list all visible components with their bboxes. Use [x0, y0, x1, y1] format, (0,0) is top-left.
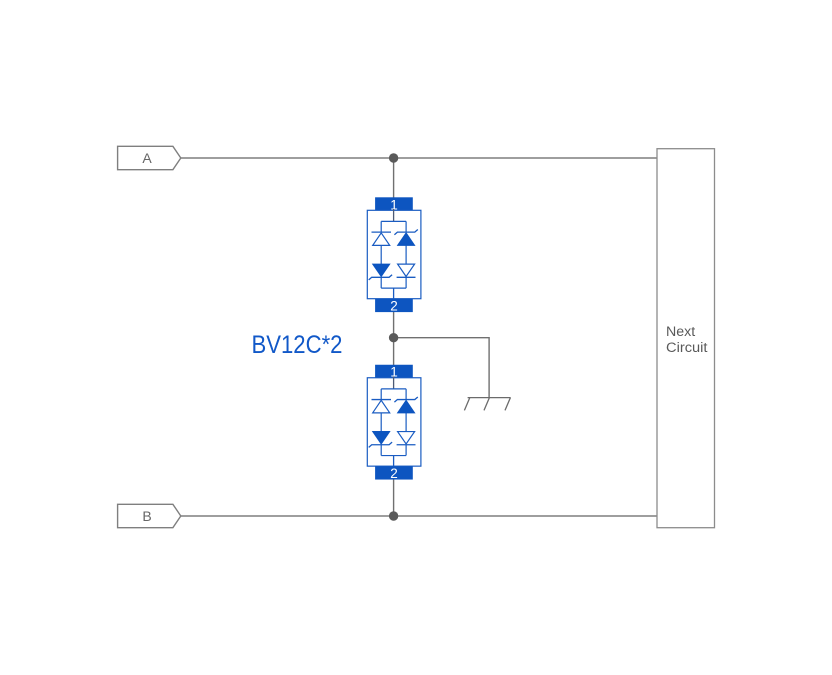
- svg-text:Next: Next: [666, 324, 695, 339]
- svg-text:BV12C*2: BV12C*2: [252, 331, 343, 359]
- svg-text:2: 2: [390, 466, 398, 481]
- svg-text:Circuit: Circuit: [666, 340, 708, 355]
- svg-text:2: 2: [390, 299, 398, 314]
- svg-text:A: A: [142, 150, 152, 166]
- svg-text:B: B: [142, 508, 151, 524]
